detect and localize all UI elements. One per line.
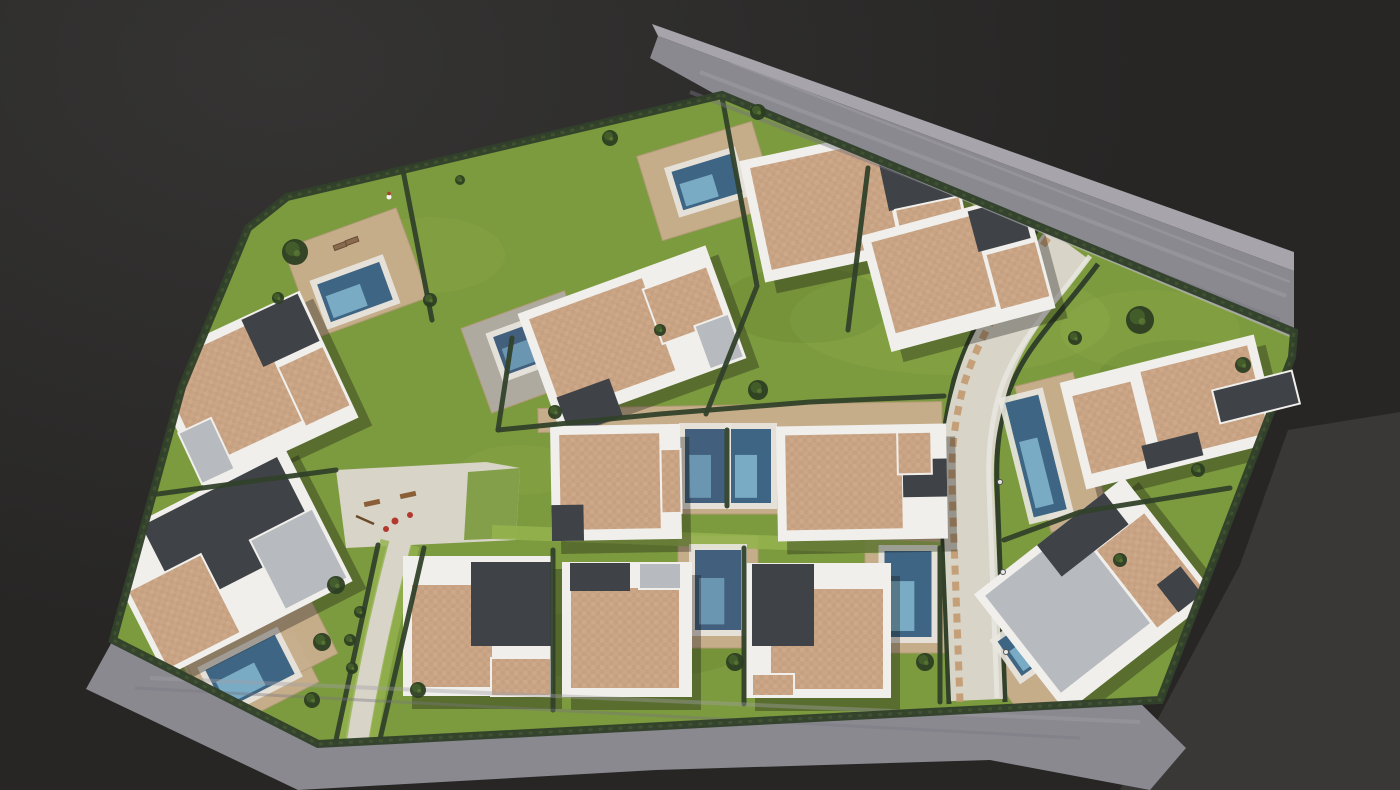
villa-b1 xyxy=(403,556,562,709)
tree-canopy-spot xyxy=(294,250,301,256)
palm-tree xyxy=(327,576,345,594)
pool-water-highlight xyxy=(689,455,711,498)
bush-tree xyxy=(1068,331,1082,345)
villa-m1 xyxy=(550,424,691,554)
tree-canopy-spot xyxy=(311,699,315,703)
bush-tree xyxy=(272,292,284,304)
tree-canopy-spot xyxy=(349,639,352,642)
villa-roof-dark xyxy=(752,564,814,646)
tree-canopy-spot xyxy=(1074,337,1078,341)
villa-roof-tan xyxy=(752,674,794,696)
bush-tree xyxy=(1113,553,1127,567)
tree-canopy-spot xyxy=(1242,364,1246,368)
tree-canopy-spot xyxy=(734,661,739,666)
tree-canopy-spot xyxy=(417,689,421,693)
play-equipment xyxy=(407,512,413,518)
play-equipment xyxy=(392,518,399,525)
tree-canopy-spot xyxy=(554,411,558,415)
bush-tree xyxy=(654,324,666,336)
villa-roof-dark xyxy=(471,562,551,646)
tree-canopy-spot xyxy=(321,641,326,646)
villa-m2 xyxy=(776,423,957,554)
villa-roof-tan xyxy=(491,658,551,696)
palm-tree xyxy=(916,653,934,671)
bush-tree xyxy=(346,662,358,674)
palm-tree xyxy=(304,692,320,708)
villa-roof-dark xyxy=(551,505,584,542)
villa-roof-dark xyxy=(570,563,630,591)
palm-tree xyxy=(313,633,331,651)
bush-tree xyxy=(1191,463,1205,477)
tree-canopy-spot xyxy=(351,667,354,670)
bush-tree xyxy=(548,405,562,419)
tree-canopy-spot xyxy=(277,297,280,300)
tree-canopy-spot xyxy=(1139,318,1146,325)
bush-tree xyxy=(455,175,465,185)
villa-roof-tan xyxy=(784,432,904,531)
bush-tree xyxy=(1235,357,1251,373)
swimming-pool xyxy=(725,423,777,509)
tree-canopy-spot xyxy=(924,661,929,666)
villa-roof-tan xyxy=(660,449,681,513)
tree-canopy-spot xyxy=(359,611,362,614)
villa-roof-tan xyxy=(897,432,932,475)
villa-b3 xyxy=(746,563,900,711)
street-lamp xyxy=(1001,570,1006,575)
palm-tree xyxy=(1126,306,1154,334)
tree-canopy-spot xyxy=(757,389,762,394)
site-plan-3d-render xyxy=(0,0,1400,790)
palm-tree xyxy=(410,682,426,698)
villa-b2 xyxy=(562,562,701,710)
pool-water-highlight xyxy=(699,578,724,624)
bush-tree xyxy=(354,606,366,618)
villa-roof-gray xyxy=(639,563,681,589)
tree-canopy-spot xyxy=(429,299,433,303)
tree-tree xyxy=(750,104,766,120)
palm-tree xyxy=(748,380,768,400)
gate-marker-flag xyxy=(387,192,391,196)
palm-tree xyxy=(726,653,744,671)
villa-roof-tan xyxy=(570,587,680,689)
palm-tree xyxy=(282,239,308,265)
tree-tree xyxy=(602,130,618,146)
play-equipment xyxy=(383,526,389,532)
tree-canopy-spot xyxy=(335,584,340,589)
tree-canopy-spot xyxy=(757,111,761,115)
tree-canopy-spot xyxy=(659,329,662,332)
tree-canopy-spot xyxy=(1197,469,1201,473)
bush-tree xyxy=(423,293,437,307)
tree-canopy-spot xyxy=(460,179,463,182)
tree-canopy-spot xyxy=(609,137,613,141)
render-viewport xyxy=(0,0,1400,790)
street-lamp xyxy=(1004,650,1009,655)
street-lamp xyxy=(998,480,1003,485)
bush-tree xyxy=(344,634,356,646)
pool-water-highlight xyxy=(735,455,757,498)
tree-canopy-spot xyxy=(1119,559,1123,563)
